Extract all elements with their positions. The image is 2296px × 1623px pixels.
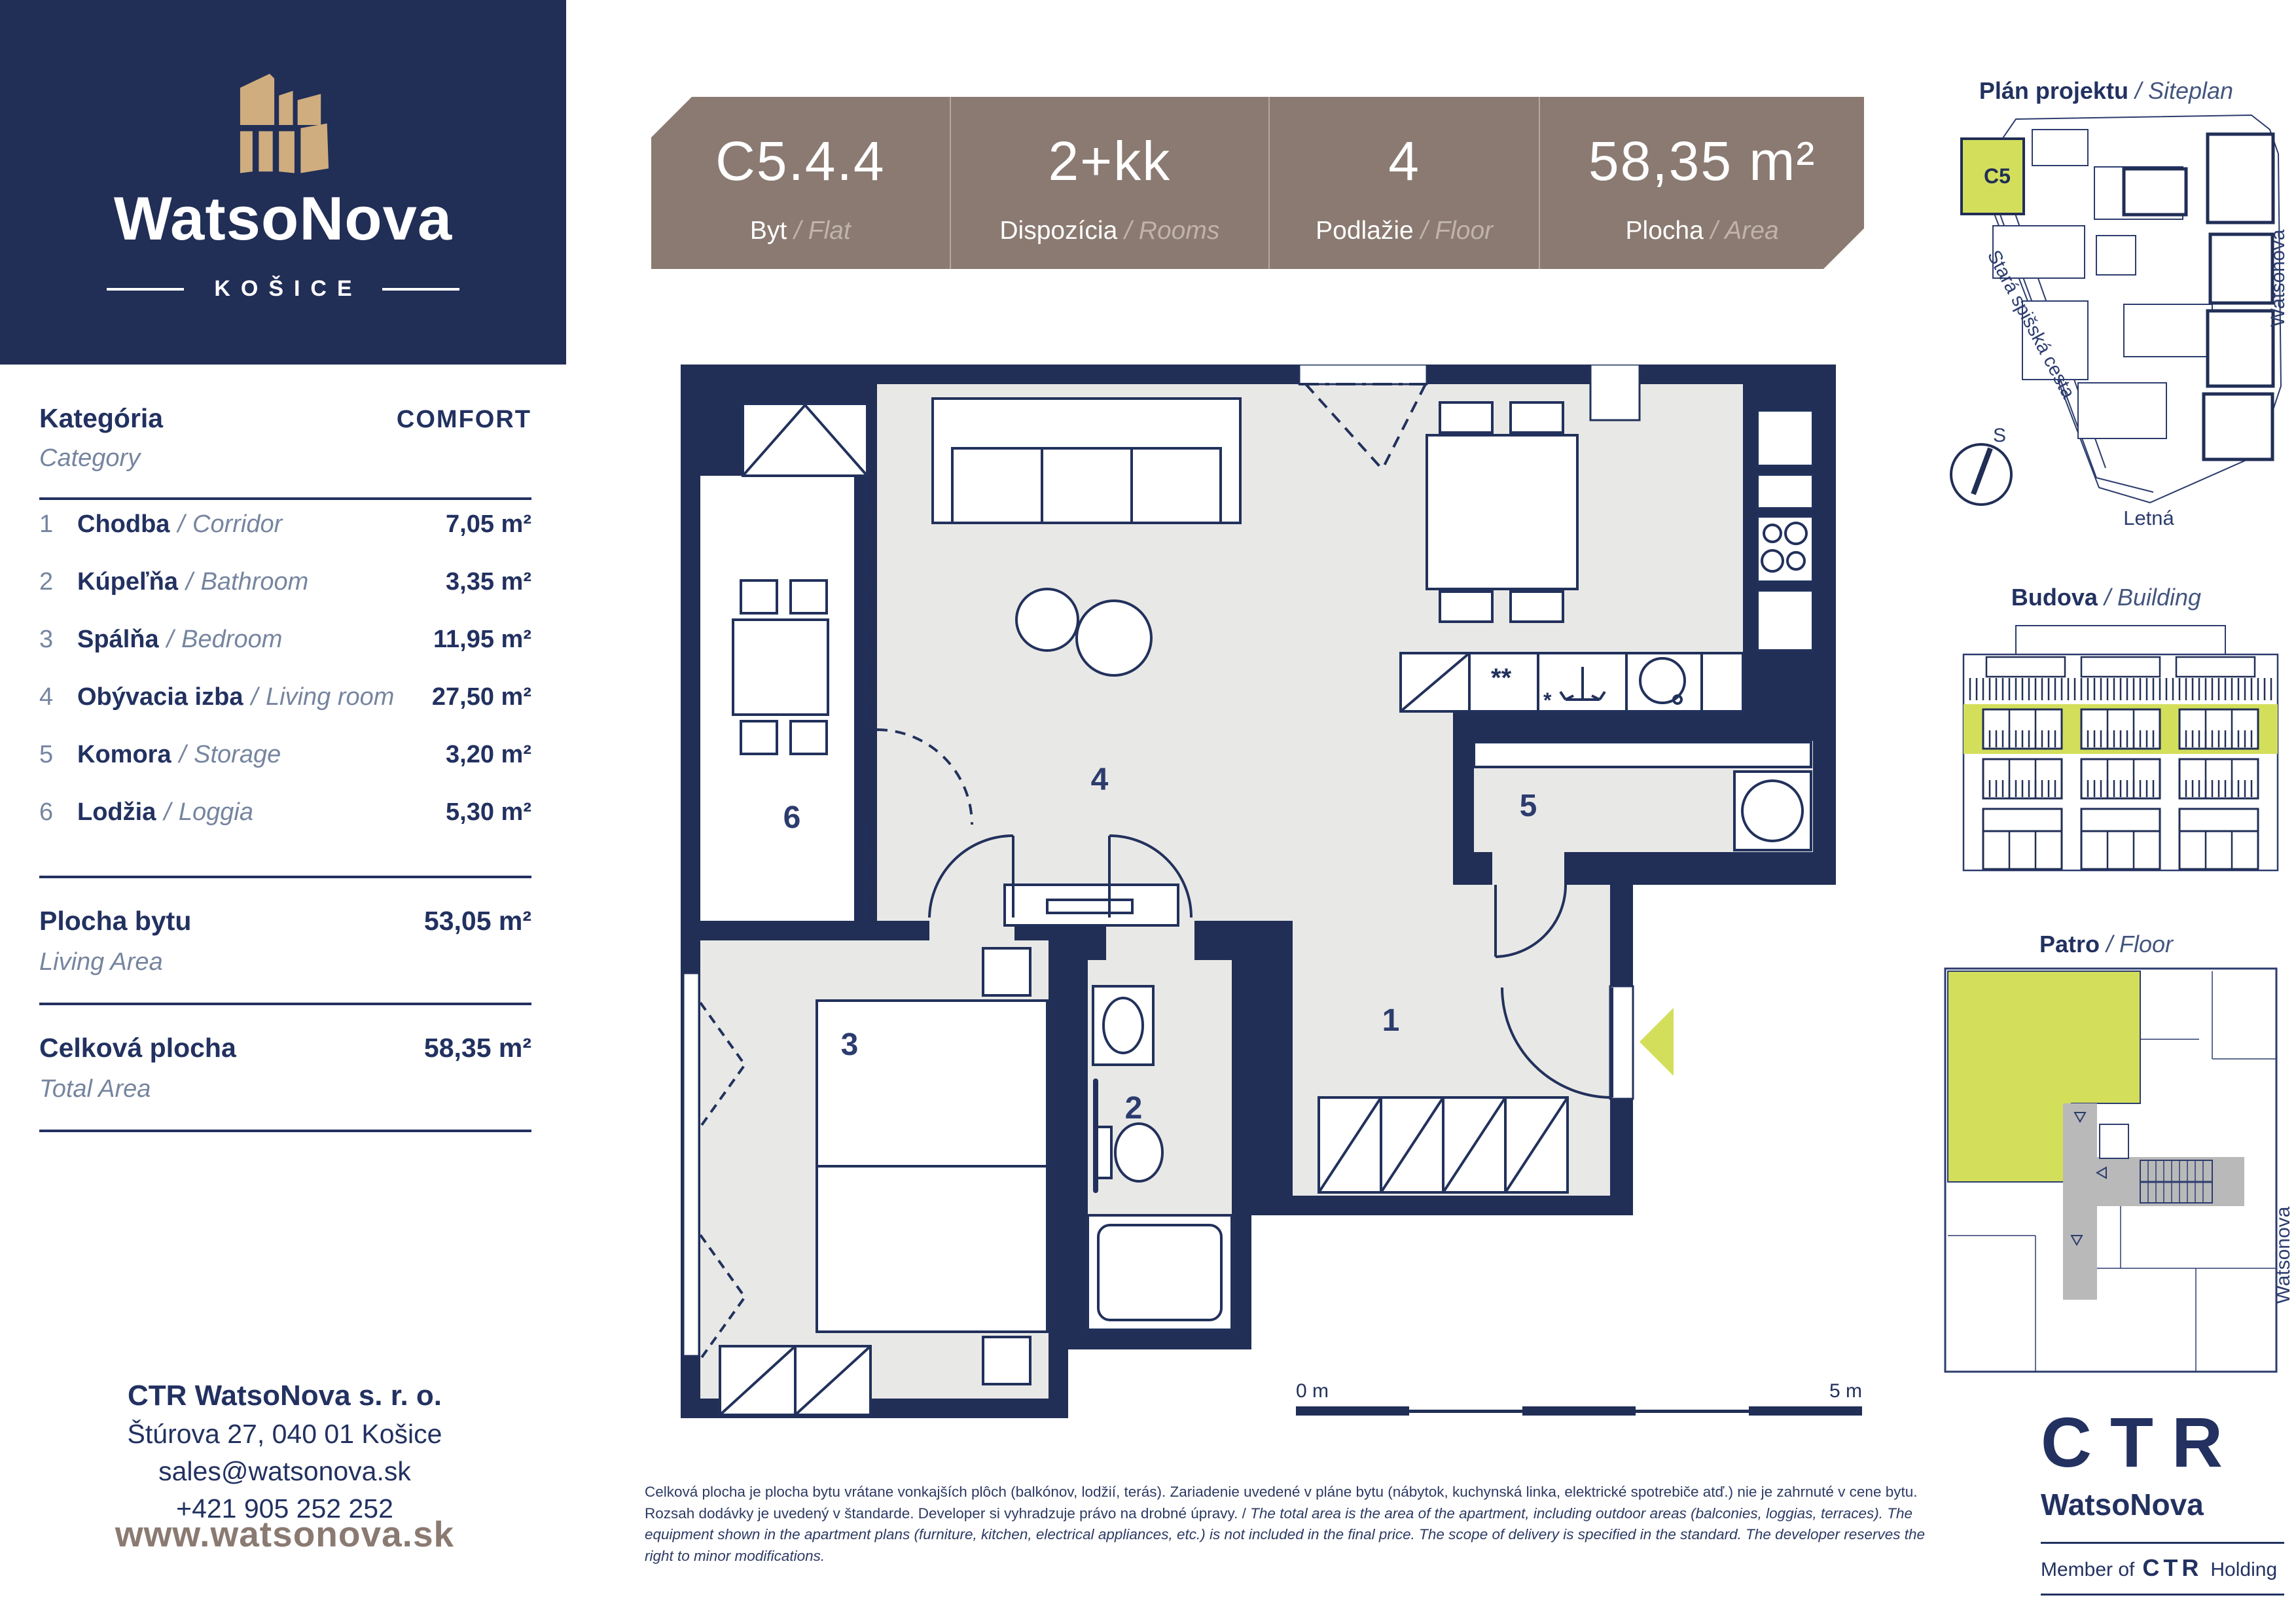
living-area-label: Plocha bytu — [39, 906, 191, 936]
living-area-value: 53,05 m² — [424, 906, 531, 936]
ctr-logo: CTR — [2041, 1407, 2296, 1478]
freezer-symbol-2: * — [1543, 688, 1552, 712]
roof-railing — [1967, 678, 2274, 700]
floor-value: 4 — [1388, 130, 1420, 193]
scale-bar: 0 m 5 m — [1296, 1380, 1862, 1416]
room-schedule: Kategória COMFORT Category 1Chodba/Corri… — [39, 403, 531, 1132]
living-area-label-en: Living Area — [39, 948, 531, 976]
company-email: sales@watsonova.sk — [62, 1456, 507, 1487]
divider — [2041, 1594, 2284, 1596]
logo-block: WatsoNova KOŠICE — [0, 0, 566, 365]
toilet — [1115, 1124, 1162, 1181]
rooms-label: Dispozícia / Rooms — [999, 217, 1219, 245]
loggia-table — [733, 620, 828, 715]
shaft — [1590, 365, 1640, 420]
living-area-block: Plocha bytu53,05 m² Living Area — [39, 906, 531, 1005]
divider — [39, 1130, 531, 1132]
floor-label: Podlažie / Floor — [1316, 217, 1493, 245]
category-label-en: Category — [39, 444, 531, 473]
category-label: Kategória — [39, 403, 163, 434]
decor-line-right — [382, 288, 459, 291]
total-area-value: 58,35 m² — [424, 1033, 531, 1063]
floorplan-svg: ** * 4 6 5 1 2 3 0 m 5 m — [681, 365, 1865, 1425]
label-storage: 5 — [1520, 789, 1537, 823]
total-area-label: Celková plocha — [39, 1033, 236, 1063]
coffee-table — [1016, 589, 1078, 651]
scale-start: 0 m — [1296, 1380, 1329, 1402]
freezer-symbol: ** — [1491, 664, 1512, 692]
siteplan-title: Plán projektu / Siteplan — [1916, 77, 2296, 105]
coffee-table — [1077, 601, 1151, 675]
building-c5-label: C5 — [1984, 164, 2011, 188]
storage-shelf — [1474, 742, 1811, 767]
company-website: www.watsonova.sk — [62, 1513, 507, 1555]
room-row-2: 2Kúpeľňa/Bathroom3,35 m² — [39, 568, 531, 626]
flat-id: C5.4.4 — [715, 130, 886, 193]
fridge — [1757, 410, 1813, 466]
total-area-label-en: Total Area — [39, 1075, 531, 1103]
floor-miniplan-svg: Watsonova — [1937, 961, 2294, 1381]
category-value: COMFORT — [397, 406, 531, 434]
label-bathroom: 2 — [1125, 1091, 1143, 1126]
bed-mattress — [817, 1001, 1047, 1166]
elevator — [2100, 1124, 2128, 1158]
member-of-row: Member of CTR Holding — [2041, 1554, 2296, 1582]
nightstand — [983, 1337, 1030, 1384]
bed-mattress — [817, 1166, 1047, 1332]
floor-title: Patro / Floor — [1916, 931, 2296, 958]
street-letna: Letná — [2123, 507, 2174, 529]
label-living-room: 4 — [1091, 762, 1109, 797]
summary-cell-area: 58,35 m² Plocha / Area — [1540, 97, 1864, 269]
kitchen-counter — [1401, 653, 1743, 711]
category-row: Kategória COMFORT — [39, 403, 531, 434]
flat-summary-ribbon: C5.4.4 Byt / Flat 2+kk Dispozícia / Room… — [651, 97, 1864, 269]
scale-end: 5 m — [1829, 1380, 1862, 1402]
ctr-mini-logo: CTR — [2142, 1554, 2202, 1582]
contact-block: CTR WatsoNova s. r. o. Štúrova 27, 040 0… — [62, 1380, 507, 1524]
nightstand — [983, 948, 1030, 995]
street-watsonova-mini: Watsonova — [2272, 1206, 2294, 1304]
brand-city-row: KOŠICE — [0, 276, 566, 302]
ctr-holding-block: CTR WatsoNova Member of CTR Holding — [2041, 1407, 2296, 1596]
room-list: 1Chodba/Corridor7,05 m² 2Kúpeľňa/Bathroo… — [39, 510, 531, 856]
label-corridor: 1 — [1382, 1003, 1400, 1038]
divider — [39, 876, 531, 878]
street-watsonova: Watsonova — [2267, 229, 2289, 327]
room-row-4: 4Obývacia izba/Living room27,50 m² — [39, 683, 531, 741]
entrance-door-opening — [1610, 986, 1633, 1099]
company-name: CTR WatsoNova s. r. o. — [62, 1380, 507, 1412]
label-bedroom: 3 — [841, 1027, 859, 1062]
summary-cell-floor: 4 Podlažie / Floor — [1270, 97, 1540, 269]
ctr-watsonova-label: WatsoNova — [2041, 1487, 2296, 1522]
room-row-5: 5Komora/Storage3,20 m² — [39, 741, 531, 798]
flat-label: Byt / Flat — [750, 217, 851, 245]
building-title: Budova / Building — [1916, 584, 2296, 611]
buildings-icon — [230, 71, 338, 175]
oven — [1757, 474, 1813, 508]
decor-line-left — [107, 288, 184, 291]
divider — [2041, 1542, 2284, 1544]
brochure-page: WatsoNova KOŠICE C5.4.4 Byt / Flat 2+kk … — [0, 0, 2296, 1623]
room-row-3: 3Spálňa/Bedroom11,95 m² — [39, 626, 531, 683]
room-row-6: 6Lodžia/Loggia5,30 m² — [39, 798, 531, 856]
room-row-1: 1Chodba/Corridor7,05 m² — [39, 510, 531, 568]
company-address: Štúrova 27, 040 01 Košice — [62, 1419, 507, 1450]
siteplan-svg: C5 S Stará spišská cesta Watsonova Letná — [1928, 111, 2294, 533]
entrance-arrow-icon — [1640, 1008, 1674, 1076]
disclaimer-text: Celková plocha je plocha bytu vrátane vo… — [645, 1482, 1941, 1567]
brand-name: WatsoNova — [0, 183, 566, 254]
summary-cell-rooms: 2+kk Dispozícia / Rooms — [951, 97, 1270, 269]
summary-cell-flat: C5.4.4 Byt / Flat — [651, 97, 951, 269]
dining-table — [1427, 435, 1577, 589]
rooms-value: 2+kk — [1048, 130, 1171, 193]
brand-city: KOŠICE — [204, 276, 362, 302]
label-loggia: 6 — [783, 800, 801, 835]
compass-icon: S — [1951, 425, 2011, 505]
floor-windows — [1983, 709, 2258, 869]
divider — [39, 1003, 531, 1005]
area-label: Plocha / Area — [1626, 217, 1779, 245]
compass-label: S — [1993, 425, 2006, 446]
total-area-block: Celková plocha58,35 m² Total Area — [39, 1033, 531, 1132]
loggia-hatch-box — [743, 404, 867, 476]
bedroom-window — [683, 973, 699, 1356]
area-value: 58,35 m² — [1588, 130, 1816, 193]
building-elevation-svg — [1947, 620, 2294, 877]
top-door-opening — [1299, 365, 1427, 384]
divider — [39, 497, 531, 500]
